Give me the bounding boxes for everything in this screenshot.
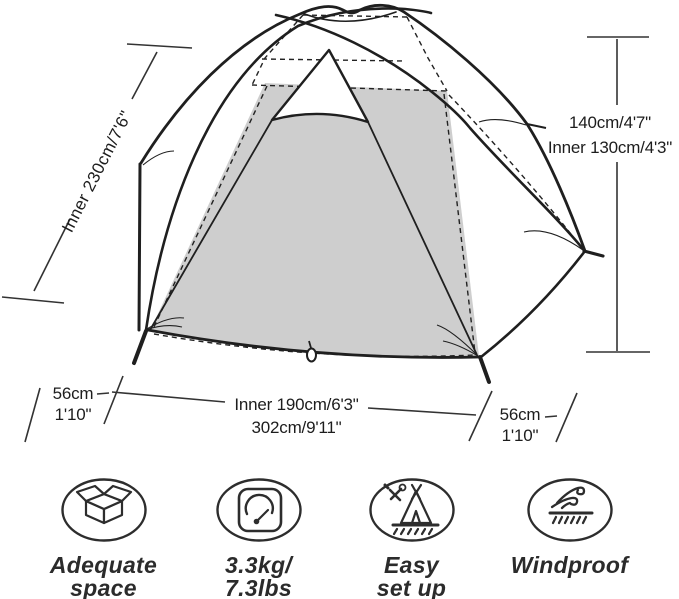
right-vestibule-cm: 56cm <box>500 405 541 424</box>
feature-easy-setup: Easy set up <box>334 470 489 599</box>
feature-label: 3.3kg/ 7.3lbs <box>181 554 336 599</box>
scale-icon <box>215 477 303 543</box>
feature-weight: 3.3kg/ 7.3lbs <box>181 470 336 599</box>
width-total: 302cm/9'11" <box>252 418 342 437</box>
dimension-label-width: Inner 190cm/6'3" 302cm/9'11" <box>204 393 389 439</box>
feature-label: Adequate space <box>26 554 181 599</box>
wind-icon <box>526 477 614 543</box>
dimension-height-bracket <box>586 37 650 352</box>
feature-label: Windproof <box>492 554 647 577</box>
left-vestibule-ft: 1'10" <box>55 405 92 424</box>
tent-setup-icon <box>368 477 456 543</box>
right-vestibule-ft: 1'10" <box>502 426 539 445</box>
feature-windproof: Windproof <box>492 470 647 577</box>
feature-label: Easy set up <box>334 554 489 599</box>
tent-front-panel <box>150 83 479 357</box>
left-vestibule-cm: 56cm <box>53 384 94 403</box>
width-inner: Inner 190cm/6'3" <box>234 395 358 414</box>
dimension-height-outer: 140cm/4'7" <box>569 113 651 132</box>
dimension-height-inner: Inner 130cm/4'3" <box>548 138 672 157</box>
open-box-icon <box>60 477 148 543</box>
feature-adequate-space: Adequate space <box>26 470 181 599</box>
dimension-label-height: 140cm/4'7" Inner 130cm/4'3" <box>540 110 679 160</box>
dimension-label-left-vestibule: 56cm 1'10" <box>40 383 106 425</box>
tent-product-diagram: Inner 230cm/7'6" 140cm/4'7" Inner 130cm/… <box>0 0 679 599</box>
dimension-label-right-vestibule: 56cm 1'10" <box>487 404 553 446</box>
